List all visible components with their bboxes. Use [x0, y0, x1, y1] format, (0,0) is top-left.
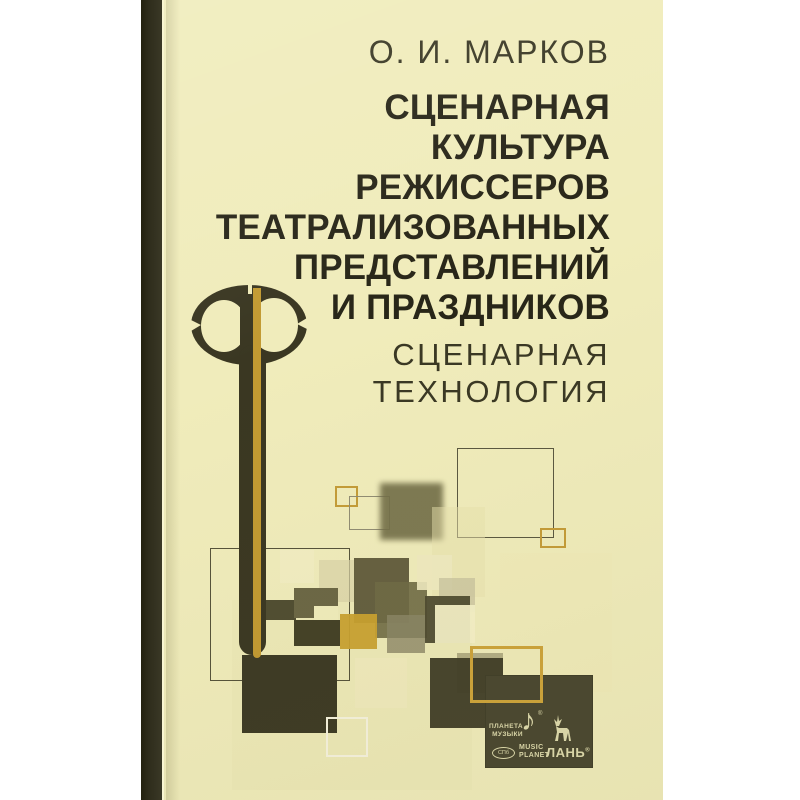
title-line: РЕЖИССЕРОВ [176, 168, 610, 208]
deer-icon [549, 711, 575, 743]
registered-mark: ® [585, 748, 590, 754]
title-line: ПРЕДСТАВЛЕНИЙ [176, 248, 610, 288]
decor-gold-outline-square [470, 646, 543, 703]
decor-cream-square [280, 550, 314, 583]
spb-badge: СПб [492, 747, 515, 759]
title-line: КУЛЬТУРА [176, 128, 610, 168]
title-line: И ПРАЗДНИКОВ [176, 288, 610, 328]
decor-gray-square [387, 615, 425, 653]
subtitle-line: СЦЕНАРНАЯ [184, 336, 610, 373]
lan-publisher-label: ЛАНЬ® [546, 745, 590, 760]
decor-cream-square [435, 605, 475, 643]
decor-gold-square [340, 614, 377, 649]
planeta-muzyki-label: ПЛАНЕТА МУЗЫКИ [489, 723, 523, 738]
decor-dark-square [242, 655, 337, 733]
registered-mark: ® [538, 711, 542, 717]
title-line: ТЕАТРАЛИЗОВАННЫХ [176, 208, 610, 248]
book-spine [141, 0, 162, 800]
music-planet-label: MUSIC PLANET [519, 744, 549, 760]
book-cover-photo: О. И. МАРКОВ СЦЕНАРНАЯКУЛЬТУРАРЕЖИССЕРОВ… [141, 0, 663, 800]
front-cover: О. И. МАРКОВ СЦЕНАРНАЯКУЛЬТУРАРЕЖИССЕРОВ… [162, 0, 663, 800]
book-title: СЦЕНАРНАЯКУЛЬТУРАРЕЖИССЕРОВТЕАТРАЛИЗОВАН… [176, 88, 610, 328]
decor-white-outline-square [326, 717, 368, 757]
decor-beige-square [319, 560, 355, 602]
title-line: СЦЕНАРНАЯ [176, 88, 610, 128]
decor-gold-outline-square [540, 528, 566, 548]
subtitle-line: ТЕХНОЛОГИЯ [184, 373, 610, 410]
decor-cream-square [355, 658, 407, 708]
music-note-icon: ♪ [521, 706, 536, 736]
author-name: О. И. МАРКОВ [184, 34, 610, 71]
book-subtitle: СЦЕНАРНАЯТЕХНОЛОГИЯ [184, 336, 610, 410]
